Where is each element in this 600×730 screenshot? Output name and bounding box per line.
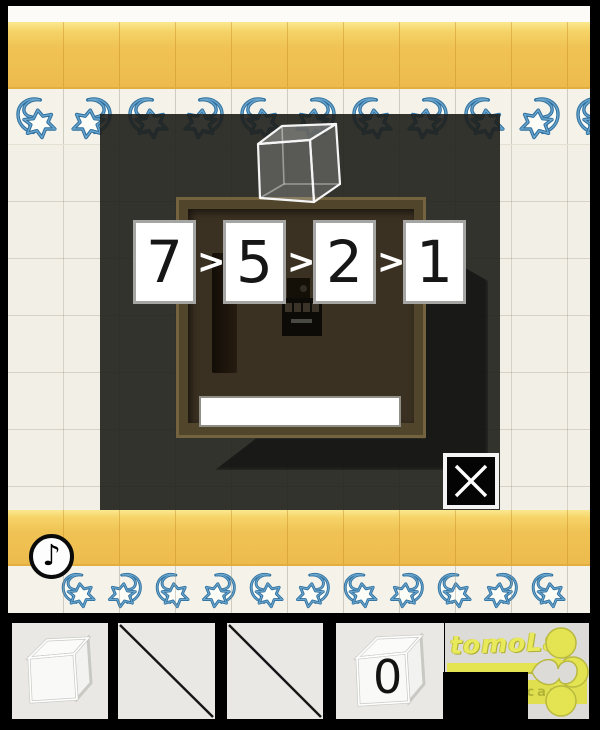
tile-row-top: [8, 6, 590, 22]
censor-black-square: [443, 672, 528, 719]
mechanism-lens: [300, 285, 307, 292]
mechanism-slot: [291, 319, 312, 323]
card-digit: 1: [416, 228, 453, 296]
close-icon: [447, 457, 495, 505]
logo-tomola[interactable]: tomoLa escape: [445, 623, 589, 719]
mechanism-button: [285, 303, 292, 312]
glass-cube-item-icon: [20, 631, 100, 711]
azulejo-border-bottom: [8, 566, 590, 613]
number-card-2[interactable]: 5: [223, 220, 286, 304]
close-button[interactable]: [443, 453, 499, 509]
sound-toggle-button[interactable]: ♪: [29, 534, 74, 579]
empty-slot-diagonal: [227, 623, 323, 719]
number-card-4[interactable]: 1: [403, 220, 466, 304]
game-screen: 7 > 5 > 2 > 1 ♪: [0, 0, 600, 730]
card-digit: 2: [326, 228, 363, 296]
popup-overlay: 7 > 5 > 2 > 1: [100, 114, 500, 510]
yellow-tile-band-bottom: [8, 510, 590, 566]
greater-than-separator: >: [287, 242, 309, 282]
mechanism-button: [294, 303, 301, 312]
mechanism-button: [312, 303, 319, 312]
glass-cube[interactable]: [248, 116, 348, 220]
mechanism-button: [303, 303, 310, 312]
greater-than-separator: >: [197, 242, 219, 282]
zero-cube-label: 0: [373, 650, 402, 704]
card-digit: 5: [236, 228, 273, 296]
key-bow-icon: [528, 626, 589, 718]
card-digit: 7: [146, 228, 183, 296]
inventory-slot-empty[interactable]: [227, 623, 323, 719]
greater-than-separator: >: [377, 242, 399, 282]
number-card-3[interactable]: 2: [313, 220, 376, 304]
music-note-icon: ♪: [42, 541, 61, 570]
yellow-tile-band-top: [8, 22, 590, 89]
inventory-slot-glass-cube[interactable]: [12, 623, 108, 719]
number-card-1[interactable]: 7: [133, 220, 196, 304]
empty-slot-diagonal: [118, 623, 215, 719]
inventory-slot-empty[interactable]: [118, 623, 215, 719]
inventory-bar: 0 tomoLa escape: [0, 613, 600, 730]
inventory-slot-zero-cube[interactable]: 0: [336, 623, 444, 719]
label-slot[interactable]: [199, 396, 401, 427]
